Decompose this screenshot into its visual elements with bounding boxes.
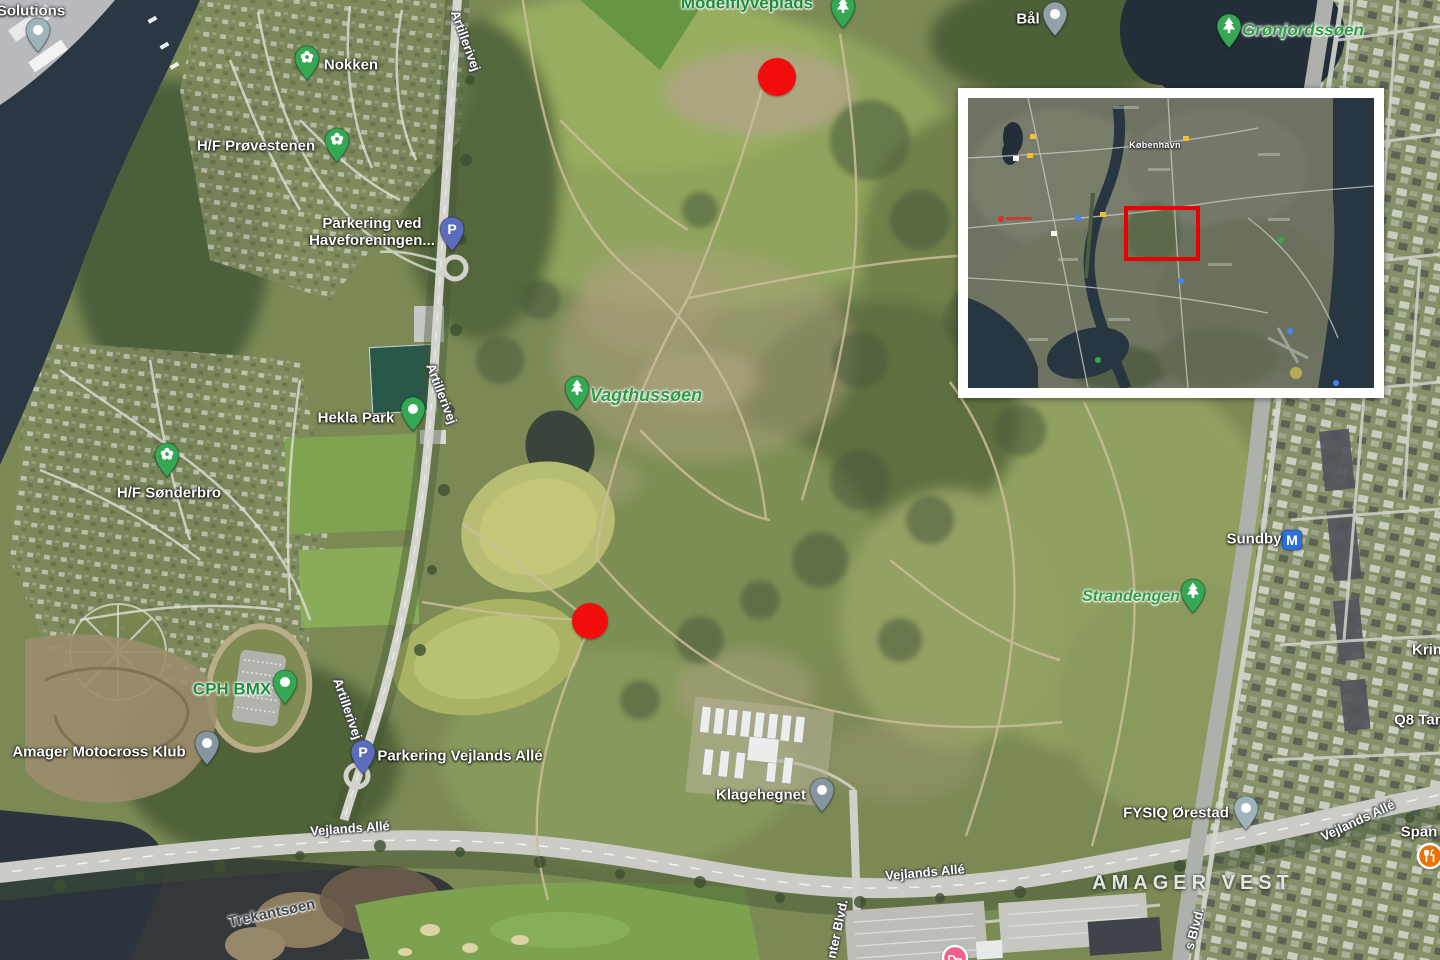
- parkering-haveforeningen-marker[interactable]: P: [439, 216, 465, 252]
- hekla-park-marker[interactable]: [400, 396, 426, 432]
- klagehegnet-marker[interactable]: [809, 777, 835, 813]
- hf-provestenen-marker[interactable]: [324, 127, 350, 163]
- fysiq-orestad-label[interactable]: FYSIQ Ørestad: [1123, 806, 1229, 823]
- cph-bmx-marker[interactable]: [272, 669, 298, 705]
- hotel-marker[interactable]: [940, 943, 970, 960]
- red-dot-north-marker[interactable]: [757, 57, 797, 97]
- baal-marker[interactable]: [1042, 1, 1068, 37]
- vagthussoen-label[interactable]: Vagthussøen: [590, 385, 702, 405]
- hekla-park-label[interactable]: Hekla Park: [318, 411, 395, 428]
- krin-label[interactable]: Krin: [1412, 643, 1440, 660]
- solutions-label[interactable]: Solutions: [0, 4, 65, 21]
- nokken-label[interactable]: Nokken: [324, 58, 378, 75]
- gronjordssoen-label[interactable]: Grønjordssøen: [1242, 20, 1364, 39]
- modelflyveplads-marker[interactable]: [830, 0, 856, 29]
- restaurant-marker[interactable]: [1415, 841, 1440, 871]
- baal-label[interactable]: Bål: [1016, 12, 1039, 29]
- hf-sonderbro-marker[interactable]: [154, 442, 180, 478]
- svg-text:P: P: [447, 221, 456, 237]
- klagehegnet-label[interactable]: Klagehegnet: [716, 788, 806, 805]
- amager-vest-label: AMAGER VEST: [1092, 872, 1294, 894]
- satellite-map-viewport[interactable]: København PPMSolutionsNokkenH/F Prøveste…: [0, 0, 1440, 960]
- cph-bmx-label[interactable]: CPH BMX: [193, 679, 271, 698]
- solutions-marker[interactable]: [25, 17, 51, 53]
- inset-highlight-rectangle: [1124, 206, 1200, 261]
- sundby-metro-marker[interactable]: M: [1281, 529, 1303, 551]
- gronjordssoen-marker[interactable]: [1216, 13, 1242, 49]
- parkering-haveforeningen-label[interactable]: Parkering vedHaveforeningen...: [309, 216, 435, 250]
- strandengen-label[interactable]: Strandengen: [1082, 588, 1180, 606]
- hf-sonderbro-label[interactable]: H/F Sønderbro: [117, 486, 221, 503]
- vagthussoen-marker[interactable]: [564, 375, 590, 411]
- parkering-vejlands-marker[interactable]: P: [350, 739, 376, 775]
- hf-provestenen-label[interactable]: H/F Prøvestenen: [197, 139, 315, 156]
- amager-motocross-label[interactable]: Amager Motocross Klub: [12, 745, 185, 762]
- parkering-vejlands-label[interactable]: Parkering Vejlands Allé: [377, 749, 542, 766]
- red-dot-south-marker[interactable]: [571, 602, 609, 640]
- inset-city-label: København: [1129, 140, 1181, 150]
- inset-overview-map[interactable]: København: [958, 88, 1384, 398]
- amager-motocross-marker[interactable]: [194, 730, 220, 766]
- strandengen-marker[interactable]: [1180, 578, 1206, 614]
- fysiq-orestad-marker[interactable]: [1233, 795, 1259, 831]
- svg-text:P: P: [358, 744, 367, 760]
- svg-text:M: M: [1286, 532, 1298, 548]
- span-label[interactable]: Span: [1401, 825, 1438, 842]
- q8-label[interactable]: Q8 Tan: [1394, 713, 1440, 730]
- sundby-label[interactable]: Sundby: [1227, 532, 1282, 549]
- modelflyveplads-label[interactable]: Modelflyveplads: [681, 0, 813, 13]
- nokken-marker[interactable]: [294, 45, 320, 81]
